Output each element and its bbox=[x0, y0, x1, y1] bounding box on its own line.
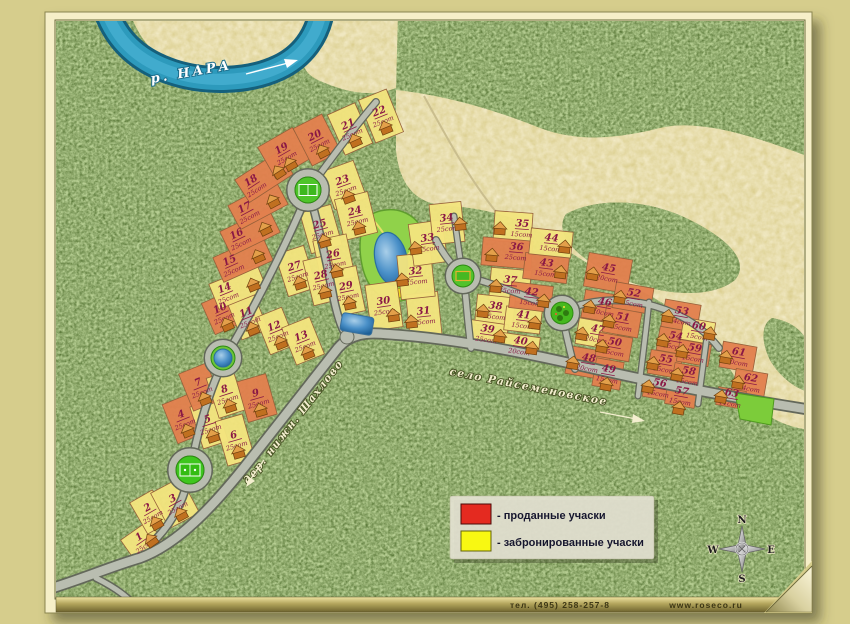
roundabout-trees-east bbox=[548, 299, 576, 327]
legend-reserved-label: - забронированные учаски bbox=[497, 537, 644, 549]
compass-w: W bbox=[706, 545, 719, 556]
roundabout-court-center bbox=[449, 262, 477, 290]
roundabout-soccer-south bbox=[172, 452, 208, 488]
compass-s: S bbox=[738, 574, 745, 585]
compass-n: N bbox=[737, 515, 746, 526]
footer-site: www.roseco.ru bbox=[668, 600, 743, 610]
sport-court-icon bbox=[456, 272, 470, 281]
roundabout-soccer-north bbox=[291, 173, 325, 207]
pond-icon bbox=[214, 349, 232, 367]
footer-bar: тел. (495) 258-257-8 www.roseco.ru bbox=[56, 597, 804, 612]
site-plan-map: р. НАРА bbox=[0, 0, 850, 624]
legend: - проданные учаски - забронированные уча… bbox=[450, 496, 658, 563]
plot-number: 35 bbox=[515, 218, 530, 230]
plot-area: 15сот bbox=[510, 230, 533, 240]
legend-sold-label: - проданные учаски bbox=[497, 510, 606, 522]
roundabout-pond-west bbox=[208, 343, 238, 373]
legend-sold-swatch bbox=[461, 504, 491, 524]
soccer-field-icon bbox=[299, 185, 317, 196]
legend-reserved-swatch bbox=[461, 531, 491, 551]
footer-phone: тел. (495) 258-257-8 bbox=[510, 600, 610, 610]
compass-e: E bbox=[767, 545, 775, 556]
soccer-field-icon bbox=[180, 464, 200, 476]
